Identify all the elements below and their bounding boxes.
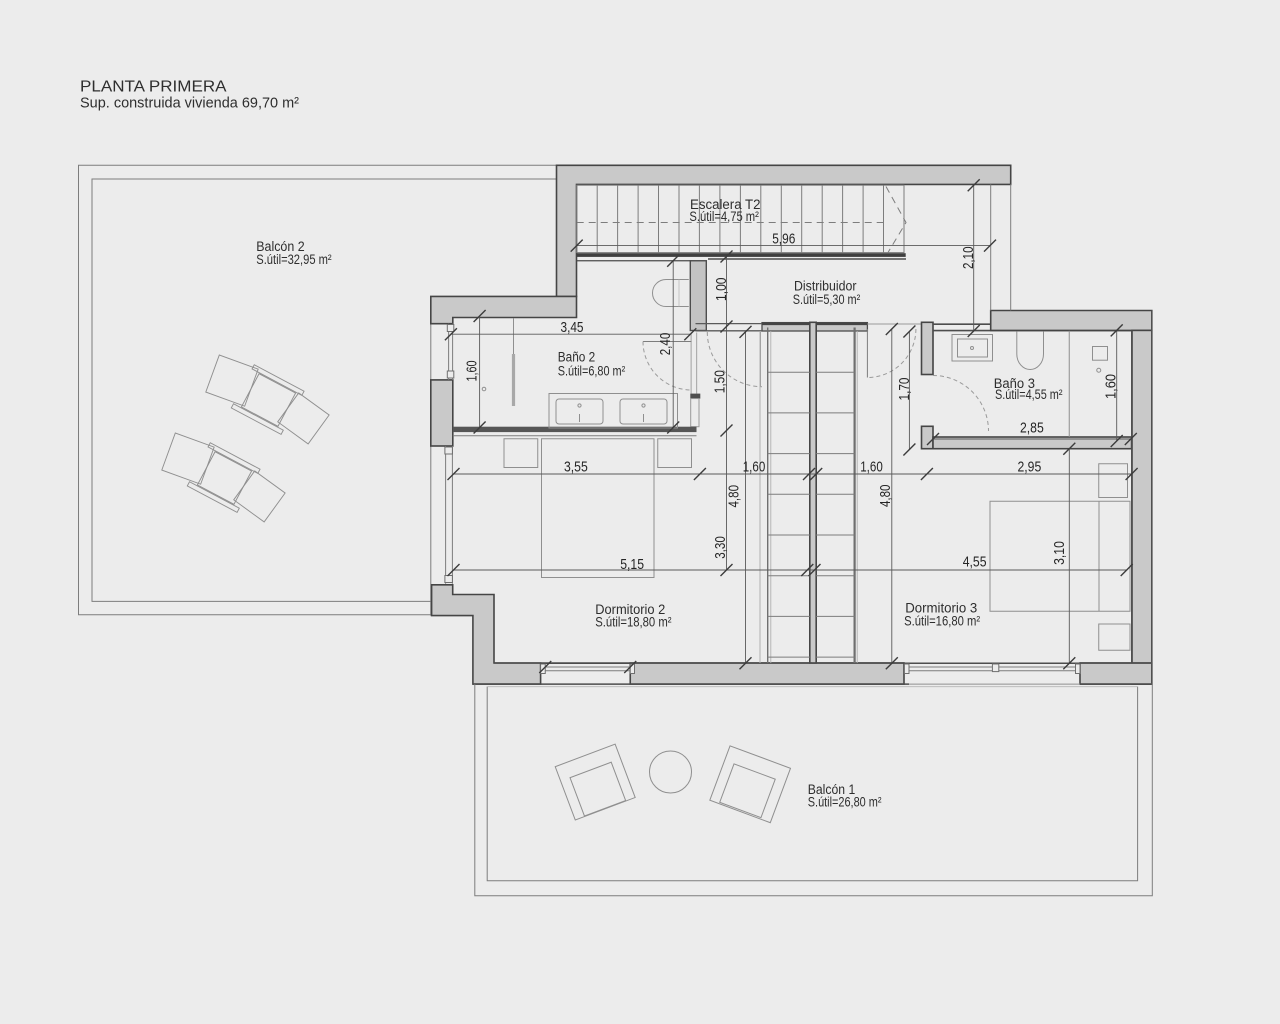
- svg-text:1,60: 1,60: [860, 459, 883, 475]
- svg-text:Sup. construida vivienda 69,70: Sup. construida vivienda 69,70 m²: [80, 95, 299, 112]
- svg-text:2,40: 2,40: [658, 333, 674, 356]
- svg-text:5,96: 5,96: [772, 231, 795, 247]
- svg-text:2,10: 2,10: [961, 247, 977, 270]
- svg-text:2,85: 2,85: [1020, 421, 1044, 437]
- svg-text:2,95: 2,95: [1018, 459, 1042, 475]
- svg-text:4,55: 4,55: [963, 554, 987, 570]
- svg-text:4,80: 4,80: [727, 485, 743, 508]
- svg-text:1,60: 1,60: [465, 361, 481, 382]
- svg-text:S.útil=18,80 m²: S.útil=18,80 m²: [595, 614, 672, 629]
- svg-text:1,60: 1,60: [743, 459, 766, 475]
- svg-text:1,70: 1,70: [897, 378, 913, 401]
- svg-text:S.útil=32,95 m²: S.útil=32,95 m²: [256, 252, 332, 267]
- svg-text:Baño 2: Baño 2: [558, 350, 596, 365]
- svg-text:3,30: 3,30: [713, 536, 729, 559]
- svg-text:1,00: 1,00: [714, 278, 730, 302]
- svg-text:S.útil=4,75 m²: S.útil=4,75 m²: [689, 209, 759, 224]
- svg-text:S.útil=16,80 m²: S.útil=16,80 m²: [904, 613, 980, 628]
- svg-text:S.útil=5,30 m²: S.útil=5,30 m²: [793, 292, 861, 307]
- svg-text:S.útil=4,55 m²: S.útil=4,55 m²: [995, 387, 1063, 402]
- svg-text:S.útil=6,80 m²: S.útil=6,80 m²: [558, 363, 626, 378]
- svg-text:5,15: 5,15: [620, 557, 644, 573]
- svg-text:S.útil=26,80 m²: S.útil=26,80 m²: [808, 795, 882, 810]
- svg-text:1,60: 1,60: [1104, 374, 1120, 399]
- svg-text:3,10: 3,10: [1052, 541, 1068, 565]
- svg-text:3,45: 3,45: [561, 320, 584, 336]
- svg-text:3,55: 3,55: [564, 459, 588, 475]
- svg-text:PLANTA PRIMERA: PLANTA PRIMERA: [80, 79, 227, 96]
- svg-text:4,80: 4,80: [878, 485, 894, 508]
- svg-text:1,50: 1,50: [713, 370, 729, 393]
